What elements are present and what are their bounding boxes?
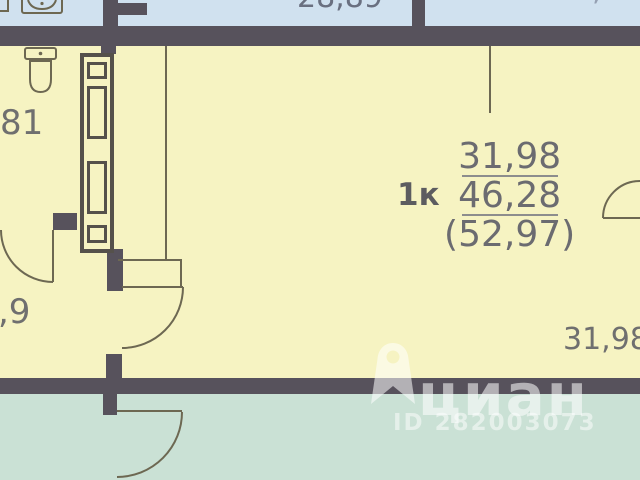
- door-swing-arc-wc: [1, 230, 53, 282]
- toilet-button: [39, 52, 43, 56]
- living-area-value: 31,98: [458, 139, 561, 174]
- wall-stub-bath-bottom: [106, 354, 122, 380]
- door-leaf-bathroom: [122, 286, 183, 288]
- floor-plan: 28,89 , 81 ,9 31,98 1к 31,98 46,28 (52,9…: [0, 0, 640, 480]
- door-swing-arc-bathroom: [122, 287, 183, 348]
- dimension-bottom-right: 31,98: [563, 325, 640, 355]
- vent-shaft-cell: [87, 62, 107, 79]
- unit-type-label: 1к: [397, 180, 440, 211]
- dimension-left-lower: ,9: [0, 295, 30, 329]
- partition-line-jamb: [180, 259, 182, 287]
- toilet-tank: [25, 48, 56, 59]
- dimension-left-upper: 81: [0, 106, 43, 140]
- wall-stub-shaft-top: [101, 40, 116, 54]
- vent-shaft-cell: [87, 161, 107, 214]
- dimension-top: 28,89: [297, 0, 383, 13]
- wall-upper-left-vertical: [103, 0, 118, 28]
- dimension-top-right-partial: ,: [592, 0, 602, 6]
- partition-line-horizontal: [118, 259, 182, 261]
- wall-top: [0, 26, 640, 46]
- overall-area-value: (52,97): [444, 217, 575, 252]
- wall-stub-wc-door: [53, 213, 77, 230]
- wall-stub-below: [103, 393, 117, 415]
- door-leaf-below: [117, 410, 182, 412]
- door-leaf-right: [603, 217, 640, 219]
- wall-stub-shaft-bottom: [107, 249, 123, 291]
- area-fraction: 31,98 46,28 (52,97): [454, 139, 566, 252]
- toilet-bowl: [30, 61, 51, 92]
- partition-line-vertical: [165, 46, 167, 260]
- door-swing-arc-right: [603, 181, 640, 218]
- watermark-listing-id: ID 282003073: [393, 412, 597, 435]
- toilet-icon: [25, 48, 56, 92]
- wall-upper-mid-vertical: [412, 0, 425, 27]
- room-area-label: 1к 31,98 46,28 (52,97): [397, 139, 566, 252]
- partition-line-kitchen: [489, 46, 491, 113]
- vent-shaft-cell: [87, 225, 107, 243]
- wall-upper-left-stub: [117, 3, 147, 15]
- vent-shaft-symbol: [80, 53, 114, 253]
- vent-shaft-cell: [87, 86, 107, 139]
- total-area-value: 46,28: [458, 178, 561, 213]
